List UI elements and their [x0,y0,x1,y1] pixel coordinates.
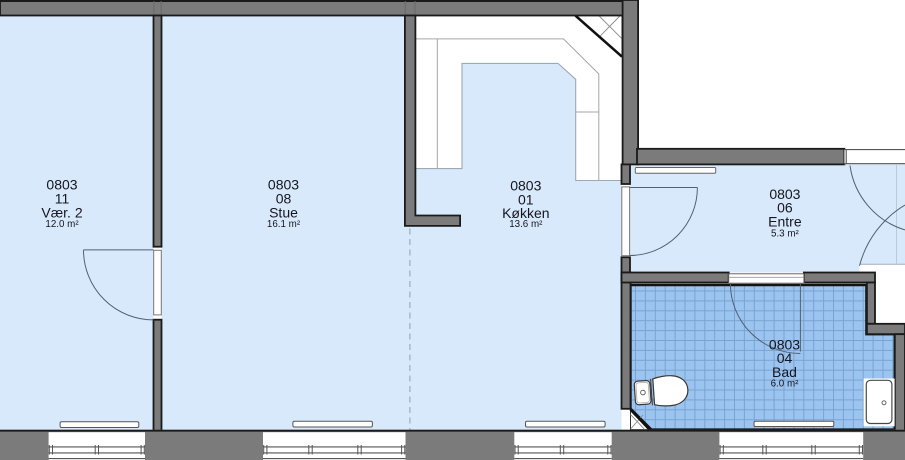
svg-text:Bad: Bad [772,364,797,380]
svg-text:16.1 m²: 16.1 m² [267,219,301,230]
svg-text:12.0 m²: 12.0 m² [45,219,79,230]
svg-text:13.6 m²: 13.6 m² [509,219,543,230]
svg-text:6.0 m²: 6.0 m² [771,379,800,390]
svg-text:5.3 m²: 5.3 m² [771,228,800,239]
svg-text:Entre: Entre [768,214,802,230]
